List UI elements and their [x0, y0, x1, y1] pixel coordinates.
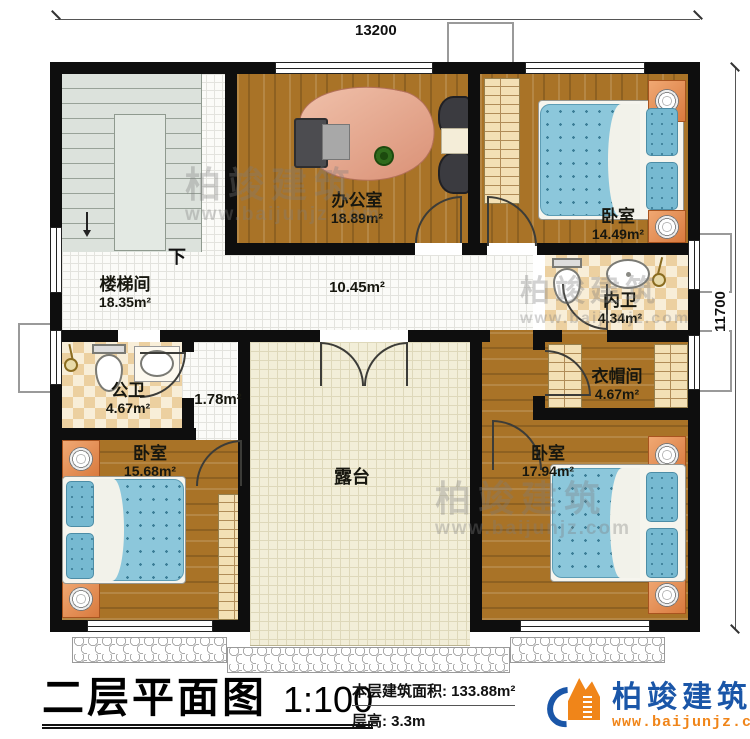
- pillow: [646, 108, 678, 156]
- pillow: [646, 162, 678, 210]
- window: [50, 330, 62, 385]
- drawing-title-group: 二层平面图 1:100: [42, 676, 373, 729]
- right-dimension-line: [735, 68, 736, 630]
- armchair: [438, 152, 472, 194]
- room-label-bedroom-top-right: 卧室 14.49m²: [592, 208, 644, 242]
- nightstand: [62, 580, 100, 618]
- roof-eave: [510, 637, 665, 663]
- right-dimension-label: 11700: [712, 288, 729, 335]
- room-area: 15.68m²: [124, 463, 176, 479]
- nightstand: [62, 440, 100, 478]
- room-area: 18.35m²: [99, 294, 151, 310]
- brand-name: 柏竣建筑: [612, 682, 750, 714]
- wardrobe: [654, 344, 688, 408]
- floor-height-row: 层高: 3.3m: [352, 706, 515, 731]
- brand-logo-icon: [548, 678, 602, 734]
- pillow: [66, 533, 94, 579]
- wall-segment: [240, 428, 250, 440]
- room-label-corridor: 10.45m²: [329, 280, 385, 296]
- window: [688, 240, 700, 290]
- room-label-nook: 1.78m²: [194, 392, 242, 408]
- floor-height-value: 3.3m: [391, 713, 425, 730]
- room-label-public-bath: 公卫 4.67m²: [106, 382, 150, 416]
- wall-segment: [533, 396, 545, 420]
- room-area: 4.34m²: [598, 310, 642, 326]
- wall-segment: [250, 330, 320, 342]
- stair-arrowhead: [83, 230, 91, 237]
- pillow: [66, 481, 94, 527]
- room-area: 4.67m²: [106, 400, 150, 416]
- wall-segment: [537, 243, 700, 255]
- drawing-title: 二层平面图: [42, 676, 267, 720]
- shower-head-icon: [652, 273, 666, 287]
- floor-height-label: 层高:: [352, 713, 387, 730]
- room-name: 卧室: [592, 208, 644, 226]
- room-label-office: 办公室 18.89m²: [331, 192, 383, 226]
- logo-building-windows: [583, 696, 592, 718]
- wall-segment: [62, 330, 118, 342]
- toilet-tank: [92, 344, 126, 354]
- room-name: 卧室: [522, 445, 574, 463]
- floor-area-label: 本层建筑面积:: [352, 683, 447, 700]
- wall-segment: [160, 330, 250, 342]
- room-name: 办公室: [331, 192, 383, 210]
- wall-segment: [468, 62, 480, 243]
- toilet-tank: [552, 258, 582, 268]
- room-name: 衣帽间: [592, 368, 643, 386]
- room-area: 18.89m²: [331, 210, 383, 226]
- top-dimension-line: [55, 19, 700, 20]
- wall-segment: [533, 342, 545, 350]
- room-area: 4.67m²: [592, 386, 643, 402]
- room-label-inner-bath: 内卫 4.34m²: [598, 292, 642, 326]
- brand-text: 柏竣建筑 www.baijunjz.com: [612, 682, 750, 731]
- lamp-icon: [655, 215, 679, 239]
- room-label-bedroom-bottom-left: 卧室 15.68m²: [124, 445, 176, 479]
- window: [525, 62, 645, 74]
- brand-website: www.baijunjz.com: [612, 714, 750, 731]
- top-bay-box: [447, 22, 514, 66]
- lamp-icon: [69, 447, 93, 471]
- window: [87, 620, 213, 632]
- floor-area-value: 133.88m²: [451, 683, 515, 700]
- wall-segment: [462, 243, 480, 255]
- room-name: 楼梯间: [99, 276, 151, 294]
- roof-eave: [72, 637, 227, 663]
- stairs-down-label: 下: [168, 243, 186, 269]
- room-name: 卧室: [124, 445, 176, 463]
- bed-sheet-fold: [94, 479, 124, 581]
- room-label-terrace: 露台: [334, 468, 370, 486]
- potted-plant: [374, 146, 394, 166]
- bed-sheet-fold: [608, 104, 640, 216]
- window: [50, 227, 62, 293]
- wall-segment: [225, 243, 415, 255]
- wall-segment: [470, 330, 482, 632]
- shower-head-icon: [64, 358, 78, 372]
- nightstand: [648, 210, 686, 243]
- room-name: 露台: [334, 468, 370, 486]
- room-area: 14.49m²: [592, 226, 644, 242]
- lamp-icon: [655, 583, 679, 607]
- room-name: 内卫: [598, 292, 642, 310]
- floor-plan-sheet: 13200 11700 下: [0, 0, 750, 739]
- top-dimension-label: 13200: [352, 22, 400, 39]
- wall-segment: [545, 408, 688, 420]
- window: [688, 335, 700, 390]
- room-label-bedroom-bottom-right: 卧室 17.94m²: [522, 445, 574, 479]
- bed-sheet-fold: [610, 468, 640, 578]
- wall-segment: [533, 330, 562, 342]
- computer-tower: [322, 124, 350, 160]
- wall-segment: [225, 62, 237, 255]
- room-area: 1.78m²: [194, 392, 242, 408]
- room-name: 公卫: [106, 382, 150, 400]
- wall-segment: [607, 330, 688, 342]
- wall-segment: [480, 243, 487, 255]
- drawing-meta: 本层建筑面积: 133.88m² 层高: 3.3m: [352, 680, 515, 731]
- stair-landing: [114, 114, 166, 251]
- side-table: [441, 128, 470, 154]
- pillow: [646, 528, 678, 578]
- terrace-floor: [250, 342, 470, 646]
- brand-block: 柏竣建筑 www.baijunjz.com: [548, 678, 750, 734]
- wall-segment: [62, 428, 196, 440]
- room-label-stair-hall: 楼梯间 18.35m²: [99, 276, 151, 310]
- window: [520, 620, 650, 632]
- wall-segment: [182, 342, 194, 352]
- room-area: 17.94m²: [522, 463, 574, 479]
- staircase: [62, 74, 202, 252]
- floor-area-row: 本层建筑面积: 133.88m²: [352, 680, 515, 706]
- pillow: [646, 472, 678, 522]
- lamp-icon: [69, 587, 93, 611]
- window: [275, 62, 433, 74]
- wardrobe: [484, 78, 520, 204]
- room-area: 10.45m²: [329, 280, 385, 296]
- roof-eave: [227, 647, 510, 673]
- sink-drain: [626, 272, 631, 277]
- room-label-cloakroom: 衣帽间 4.67m²: [592, 368, 643, 402]
